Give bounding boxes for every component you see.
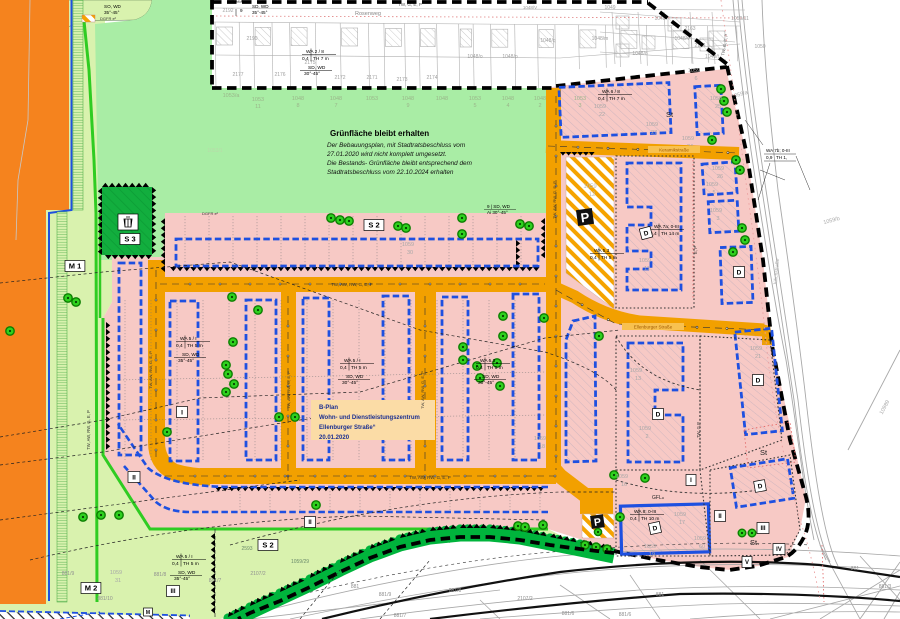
svg-text:0,9: 0,9 [766,155,773,160]
svg-text:1059: 1059 [616,474,628,480]
svg-text:2173: 2173 [396,77,407,83]
svg-text:S 2: S 2 [262,541,273,550]
svg-text:B-Plan: B-Plan [319,405,338,411]
svg-text:IV: IV [776,547,782,553]
svg-text:III: III [170,589,175,595]
svg-text:TH 14 m: TH 14 m [661,231,679,237]
svg-text:TH 7 m: TH 7 m [609,96,625,102]
svg-text:0,4: 0,4 [476,365,483,371]
svg-text:1059: 1059 [682,136,694,142]
svg-text:WA 2 / 8: WA 2 / 8 [228,0,244,3]
svg-text:881/8: 881/8 [449,588,462,594]
svg-text:TH 5 m: TH 5 m [601,255,617,261]
svg-text:26: 26 [717,174,723,180]
svg-text:WA 7a; 0-III: WA 7a; 0-III [654,224,679,230]
svg-text:E, P: E, P [693,246,698,254]
svg-text:Ai 30°-45°: Ai 30°-45° [487,210,508,215]
svg-text:2192: 2192 [222,8,233,14]
svg-text:2172: 2172 [334,75,345,81]
svg-text:M 2: M 2 [85,584,98,593]
svg-text:881/6: 881/6 [619,612,632,618]
svg-text:WA 7b; 0-III: WA 7b; 0-III [766,148,790,153]
svg-text:22: 22 [599,112,605,118]
svg-text:TW, AW, RW, G, E, P: TW, AW, RW, G, E, P [420,371,425,409]
svg-text:60: 60 [699,544,705,550]
svg-text:1059: 1059 [639,258,651,264]
svg-text:35°-45°: 35°-45° [104,10,120,15]
svg-text:21: 21 [755,354,761,360]
svg-text:881/3: 881/3 [879,584,892,590]
svg-text:TH 5 m: TH 5 m [183,561,199,567]
svg-text:35°-45°: 35°-45° [174,576,190,582]
svg-text:Rosenweg: Rosenweg [355,11,381,17]
svg-text:II: II [308,520,312,526]
svg-text:St: St [666,110,674,119]
svg-text:2171: 2171 [366,75,377,81]
svg-text:1059: 1059 [534,436,546,442]
svg-text:1053/a: 1053/a [223,93,241,99]
svg-text:1059: 1059 [750,346,762,352]
svg-text:2107/2: 2107/2 [517,596,533,602]
svg-text:SD, WD: SD, WD [346,374,364,380]
svg-text:TW, AW, RW, G, E, P: TW, AW, RW, G, E, P [552,181,557,219]
svg-text:WA 2 / 8: WA 2 / 8 [306,49,324,55]
svg-text:8: 8 [296,103,299,109]
svg-text:DGFR e²: DGFR e² [100,16,117,21]
svg-text:SO, WD: SO, WD [104,4,122,9]
svg-text:SD, WD: SD, WD [482,374,500,380]
svg-text:35°-45°: 35°-45° [252,10,268,15]
svg-text:DGFR e²: DGFR e² [202,211,219,216]
svg-text:11: 11 [644,266,650,272]
svg-text:881/6: 881/6 [562,611,575,617]
svg-text:7: 7 [334,103,337,109]
svg-text:1049: 1049 [604,5,615,11]
svg-text:1048: 1048 [436,96,448,102]
svg-text:27.01.2020 wird nicht komplett: 27.01.2020 wird nicht komplett umgesetzt… [326,151,447,158]
svg-text:1059: 1059 [630,368,642,374]
svg-text:1053: 1053 [252,97,264,103]
svg-text:881: 881 [656,592,665,598]
svg-text:1053: 1053 [469,96,481,102]
svg-text:1059/29: 1059/29 [291,559,309,565]
svg-text:M 1: M 1 [69,262,82,271]
svg-text:0,4: 0,4 [172,561,179,567]
svg-text:TW, AW, RW, G, E, P: TW, AW, RW, G, E, P [86,410,91,450]
svg-text:1048/q: 1048/q [540,38,556,44]
svg-text:WA 8; 0-III: WA 8; 0-III [634,509,656,515]
svg-text:D: D [737,269,742,276]
svg-text:2174: 2174 [426,75,437,81]
svg-text:1059: 1059 [712,166,724,172]
svg-text:TW, AW, RW, G, E, P: TW, AW, RW, G, E, P [331,282,373,287]
svg-text:TH 5 m: TH 5 m [187,343,203,349]
svg-text:2: 2 [538,103,541,109]
svg-text:WA 6 / 8: WA 6 / 8 [602,89,620,95]
svg-text:St: St [760,448,768,457]
svg-text:TH 10 m: TH 10 m [641,516,659,522]
svg-text:2177: 2177 [232,72,243,78]
svg-text:3: 3 [716,216,719,222]
svg-text:18: 18 [539,444,545,450]
svg-text:1059: 1059 [639,426,651,432]
svg-text:881: 881 [851,566,860,572]
svg-text:1059: 1059 [710,208,722,214]
svg-text:0,4: 0,4 [630,516,637,522]
svg-text:6: 6 [694,76,697,82]
svg-text:Die Bestands- Grünfläche bleib: Die Bestands- Grünfläche bleibt entsprec… [327,160,473,167]
svg-text:WA 5 / I: WA 5 / I [180,336,197,342]
svg-text:Der Bebauungsplan, mit Stadtra: Der Bebauungsplan, mit Stadtratsbeschlus… [327,142,466,149]
svg-text:1048/o: 1048/o [467,54,483,60]
svg-text:27: 27 [651,130,657,136]
svg-text:13: 13 [635,376,641,382]
svg-text:1048: 1048 [330,96,342,102]
svg-text:2176: 2176 [274,72,285,78]
svg-text:1059: 1059 [710,96,722,102]
svg-text:TW, AW, RW, G, E, P: TW, AW, RW, G, E, P [409,475,451,480]
svg-text:1059: 1059 [694,536,706,542]
svg-text:1048: 1048 [502,96,514,102]
svg-text:881/10: 881/10 [97,596,113,602]
svg-text:0,4: 0,4 [302,56,309,62]
svg-text:WA 5 / I: WA 5 / I [344,358,361,364]
svg-text:St.: St. [750,538,759,547]
svg-text:D: D [656,411,661,418]
svg-text:S 2: S 2 [368,221,379,230]
svg-text:TW, G,P: TW, G,P [696,422,701,438]
svg-text:1059: 1059 [583,184,597,190]
svg-text:II: II [718,514,722,520]
svg-text:III: III [760,526,765,532]
svg-text:2190: 2190 [246,36,257,42]
svg-text:Ellenburger Straße“: Ellenburger Straße“ [319,425,376,431]
svg-text:1053/1: 1053/1 [207,148,223,154]
svg-text:1059: 1059 [688,68,700,74]
svg-text:4: 4 [506,103,509,109]
svg-text:SD, WD: SD, WD [178,570,196,576]
svg-text:0,4: 0,4 [340,365,347,371]
svg-text:TH 1,: TH 1, [776,155,787,160]
svg-text:Stadtratsbeschluss vom 22.10.2: Stadtratsbeschluss vom 22.10.2024 erhalt… [327,169,454,176]
svg-text:1048/o: 1048/o [632,51,648,57]
svg-text:TH 5 m: TH 5 m [487,365,503,371]
svg-text:1059: 1059 [644,544,656,550]
svg-text:Keramikstraße: Keramikstraße [659,148,689,153]
svg-text:2: 2 [645,434,648,440]
svg-text:881/9: 881/9 [62,571,75,577]
svg-text:S 3: S 3 [124,235,135,244]
svg-text:19: 19 [649,552,655,558]
svg-text:1048/V: 1048/V [523,5,537,10]
svg-text:30°-45°: 30°-45° [478,380,494,386]
svg-text:5: 5 [473,103,476,109]
svg-text:35°-45°: 35°-45° [178,358,194,364]
svg-text:30°-45°: 30°-45° [304,71,320,77]
svg-text:0,4: 0,4 [590,255,597,261]
svg-text:1059: 1059 [402,242,414,248]
svg-text:WA 5 / I: WA 5 / I [176,554,193,560]
svg-text:1048: 1048 [534,96,546,102]
svg-text:TW, AW, RW, G, E, P: TW, AW, RW, G, E, P [286,371,291,409]
svg-text:25: 25 [715,104,721,110]
svg-text:31: 31 [115,578,121,584]
svg-text:I: I [181,409,183,416]
svg-text:SD, WD: SD, WD [252,4,269,9]
svg-text:881/9: 881/9 [379,592,392,598]
svg-text:0,4: 0,4 [176,343,183,349]
svg-text:9 | SD, WD: 9 | SD, WD [487,204,511,209]
svg-text:1059: 1059 [646,122,658,128]
svg-text:SD, WD: SD, WD [182,352,200,358]
svg-text:5: 5 [712,190,715,196]
svg-text:WA 5,3: WA 5,3 [594,248,610,254]
svg-text:Ellenburger Straße: Ellenburger Straße [634,325,673,330]
svg-text:20.01.2020: 20.01.2020 [319,435,350,441]
svg-text:1059: 1059 [674,512,686,518]
svg-text:M: M [146,610,150,616]
svg-text:881/7: 881/7 [394,613,407,619]
svg-text:1048/v: 1048/v [674,36,690,42]
svg-text:0,4: 0,4 [598,96,605,102]
svg-text:II: II [132,474,136,481]
svg-text:9: 9 [240,8,243,13]
svg-text:SD, WD: SD, WD [308,65,326,71]
svg-text:11: 11 [255,104,261,110]
svg-text:16: 16 [621,482,627,488]
svg-text:TH 7 m: TH 7 m [313,56,329,62]
svg-text:2107/2: 2107/2 [250,571,266,577]
svg-text:1048: 1048 [402,96,414,102]
svg-text:1053: 1053 [366,96,378,102]
svg-text:1048/p: 1048/p [502,54,518,60]
svg-text:17: 17 [679,520,685,526]
svg-text:V: V [745,560,749,566]
svg-text:2593: 2593 [241,546,252,552]
svg-text:9: 9 [406,103,409,109]
svg-text:12: 12 [589,192,596,198]
svg-text:TH 5 m: TH 5 m [351,365,367,371]
svg-text:30: 30 [407,250,413,256]
svg-text:D: D [756,377,761,384]
svg-text:1048: 1048 [292,96,304,102]
svg-text:1059: 1059 [110,570,122,576]
svg-text:1048/m: 1048/m [592,36,609,42]
svg-text:WA 5,3: WA 5,3 [480,358,496,364]
svg-text:30°-45°: 30°-45° [342,380,358,386]
svg-text:Wohn- und Dienstleistungszentr: Wohn- und Dienstleistungszentrum [319,415,420,421]
svg-text:881: 881 [351,584,360,590]
svg-text:1059: 1059 [706,182,718,188]
svg-text:TW, AW, RW, G, E, P: TW, AW, RW, G, E, P [148,351,153,389]
svg-text:Grünfläche bleibt erhalten: Grünfläche bleibt erhalten [330,129,429,138]
svg-text:881/8: 881/8 [154,572,167,578]
svg-text:1059: 1059 [594,104,606,110]
